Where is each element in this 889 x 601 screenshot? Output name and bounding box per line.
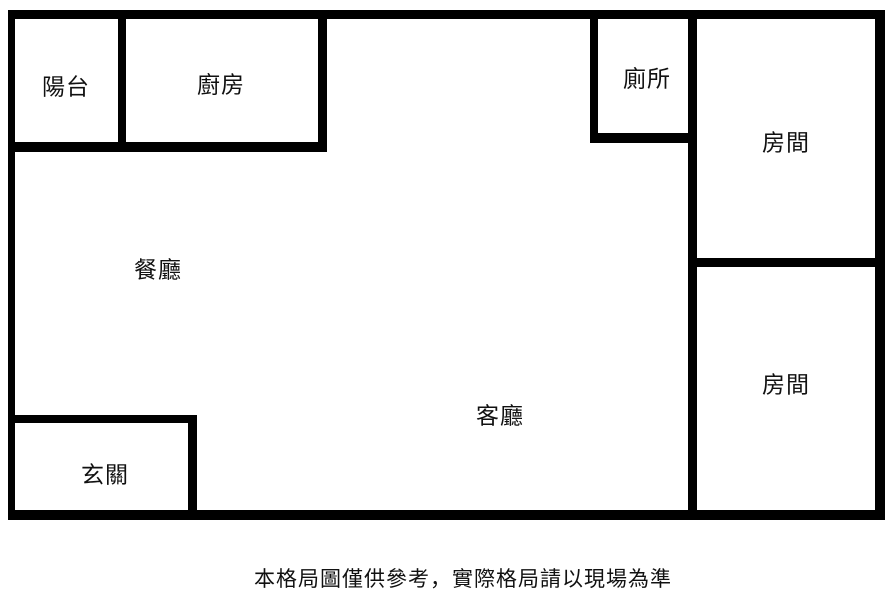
room-label-bedroom-top: 房間 — [762, 132, 810, 155]
wall-outer-top — [8, 10, 885, 19]
room-label-toilet: 廁所 — [623, 68, 671, 91]
disclaimer-text: 本格局圖僅供參考，實際格局請以現場為準 — [254, 563, 672, 593]
room-label-entrance: 玄關 — [81, 464, 129, 487]
wall-outer-left — [8, 10, 15, 520]
room-label-dining-room: 餐廳 — [134, 259, 182, 282]
room-label-balcony: 陽台 — [42, 76, 90, 99]
wall-outer-bottom — [8, 510, 885, 520]
floor-plan: 陽台 廚房 廁所 房間 餐廳 客廳 房間 玄關 本格局圖僅供參考，實際格局請以現… — [0, 0, 889, 601]
wall-kitchen-bottom — [8, 142, 327, 152]
wall-toilet-bottom — [590, 133, 697, 143]
wall-balcony-kitchen-divider — [118, 10, 126, 152]
room-label-bedroom-bottom: 房間 — [762, 374, 810, 397]
wall-bedrooms-divider — [688, 258, 885, 267]
wall-entrance-right — [188, 415, 197, 520]
room-label-living-room: 客廳 — [476, 405, 524, 428]
wall-kitchen-right — [318, 10, 327, 152]
room-label-kitchen: 廚房 — [197, 74, 245, 97]
wall-entrance-top — [8, 415, 197, 423]
wall-toilet-left — [590, 10, 598, 143]
